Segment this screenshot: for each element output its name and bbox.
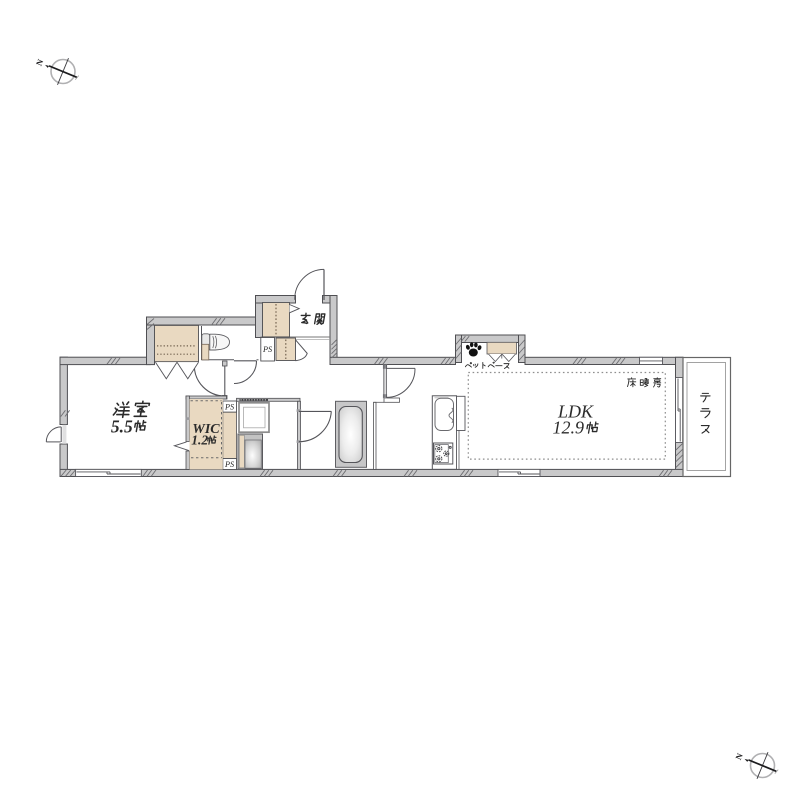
svg-text:PS: PS: [224, 402, 234, 411]
svg-text:1.2: 1.2: [191, 433, 208, 448]
svg-text:PS: PS: [224, 460, 234, 469]
svg-text:5.5: 5.5: [111, 416, 133, 436]
svg-text:PS: PS: [262, 345, 272, 354]
svg-text:12.9: 12.9: [553, 418, 585, 438]
